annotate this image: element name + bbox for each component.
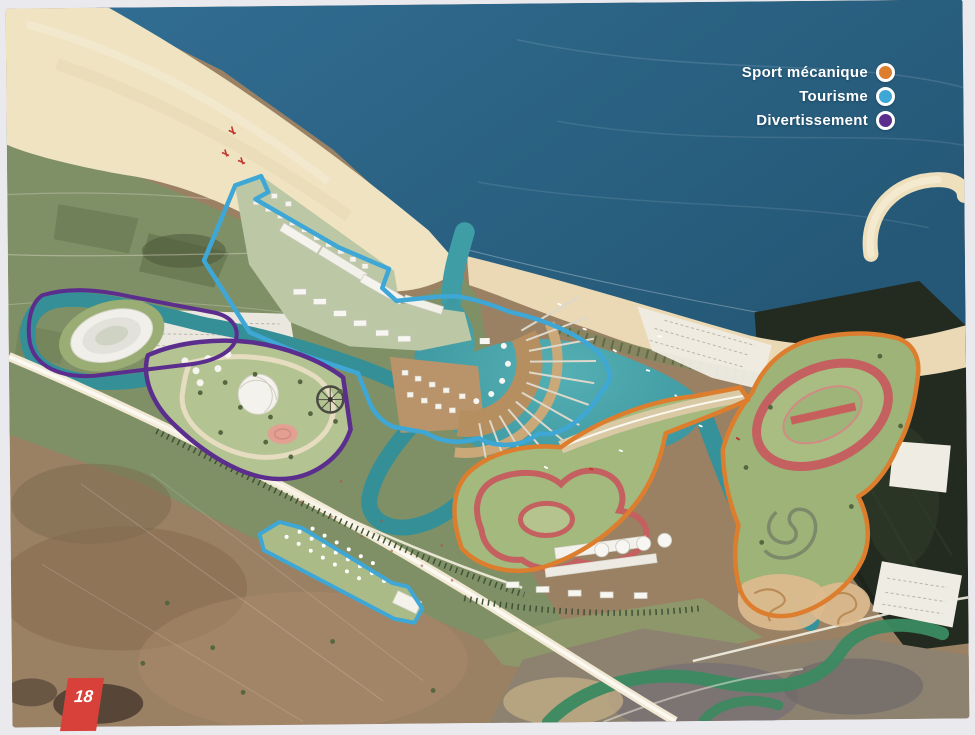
legend-swatch-divertissement-icon — [876, 111, 895, 130]
scanned-plan-page: Sport mécanique Tourisme Divertissement … — [0, 0, 975, 735]
legend-item-divertissement: Divertissement — [742, 109, 895, 132]
page-number: 18 — [73, 687, 94, 707]
legend-swatch-sport-mecanique-icon — [876, 63, 895, 82]
legend-item-tourisme: Tourisme — [742, 85, 895, 108]
legend-item-sport-mecanique: Sport mécanique — [742, 61, 895, 84]
arena-oval — [520, 503, 572, 535]
legend: Sport mécanique Tourisme Divertissement — [742, 61, 895, 132]
legend-label-sport-mecanique: Sport mécanique — [742, 64, 868, 81]
legend-label-tourisme: Tourisme — [799, 88, 868, 105]
legend-swatch-tourisme-icon — [876, 87, 895, 106]
legend-label-divertissement: Divertissement — [756, 112, 868, 129]
